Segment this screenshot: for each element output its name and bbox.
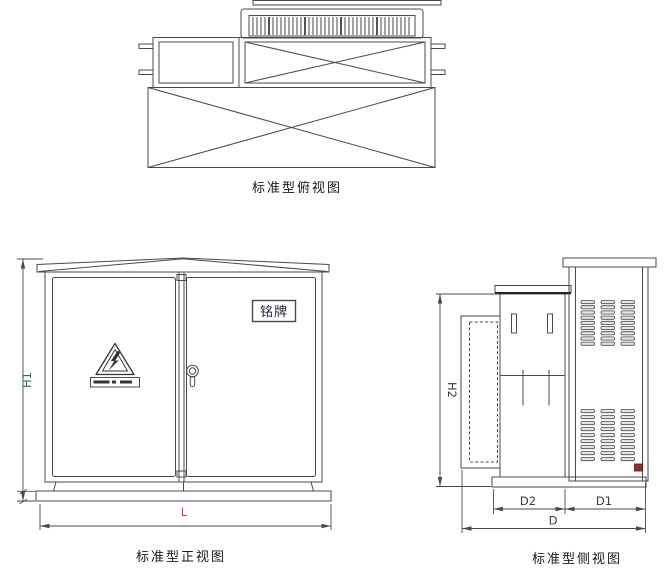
louver-slat	[621, 301, 635, 304]
d2-dimension-label: D2	[520, 494, 536, 508]
louver-slat	[581, 316, 595, 319]
front-view: 铭牌 H1 L	[17, 258, 331, 565]
louver-slat	[581, 311, 595, 314]
louver-slat	[621, 416, 635, 419]
louver-slat	[601, 342, 615, 345]
louver-slat	[601, 311, 615, 314]
d1-dimension-label: D1	[596, 494, 612, 508]
handle-ring	[187, 365, 199, 377]
l-dimension-label: L	[181, 505, 188, 519]
handle-stem	[190, 377, 194, 387]
louver-slat	[601, 332, 615, 335]
louver-slat	[621, 446, 635, 449]
louver-slat	[621, 428, 635, 431]
right-lifting-lug	[431, 44, 445, 49]
louver-slat	[581, 332, 595, 335]
louver-slat	[621, 321, 635, 324]
base-platform	[36, 491, 331, 501]
door-handle	[187, 365, 199, 386]
h2-dimension-label: H2	[445, 382, 459, 398]
louver-slat	[621, 434, 635, 437]
plinth-bracket-left	[54, 482, 57, 491]
radiator-grille-frame	[249, 16, 415, 37]
right-lifting-lug	[431, 70, 445, 75]
side-view-title: 标准型侧视图	[532, 552, 622, 567]
vent-slot	[548, 314, 553, 333]
warning-text-marks	[94, 381, 110, 384]
louver-slat	[581, 321, 595, 324]
middle-compartment-roof	[495, 286, 571, 293]
top-view: 标准型俯视图	[139, 1, 445, 197]
louver-slat	[581, 327, 595, 330]
louver-slat	[581, 458, 595, 461]
drawing-canvas: 标准型俯视图 铭牌	[0, 0, 670, 577]
louver-slat	[601, 440, 615, 443]
door-swing-box	[461, 316, 500, 468]
handle-ring-inner	[189, 368, 195, 374]
louver-slat	[621, 458, 635, 461]
louver-slat	[601, 316, 615, 319]
louver-slat	[601, 428, 615, 431]
substation-three-view-drawing: 标准型俯视图 铭牌	[0, 0, 670, 577]
louver-slat	[621, 332, 635, 335]
door-swing-dashed-outline	[470, 322, 498, 462]
plinth-bracket-right	[311, 482, 314, 491]
d-dimension-label: D	[549, 514, 558, 528]
louver-slat	[621, 327, 635, 330]
louver-slat	[601, 452, 615, 455]
top-view-rear-edge-bar	[253, 1, 441, 6]
louver-slat	[601, 416, 615, 419]
louver-slat	[621, 422, 635, 425]
top-view-title: 标准型俯视图	[252, 180, 342, 196]
warning-sign	[91, 344, 140, 388]
radiator-grille-bars	[253, 17, 409, 35]
louver-slat	[601, 422, 615, 425]
hv-compartment-outline	[153, 38, 239, 88]
louver-slat	[621, 316, 635, 319]
louver-slat	[581, 428, 595, 431]
divider-hinge-bottom	[177, 471, 186, 477]
louver-slat	[601, 327, 615, 330]
drain-valve	[635, 464, 643, 471]
cabinet-roof-cap	[563, 258, 656, 267]
louver-slat	[581, 410, 595, 413]
warning-text-marks	[112, 381, 116, 384]
louver-slat	[581, 301, 595, 304]
louver-slat	[581, 306, 595, 309]
louver-slat	[581, 446, 595, 449]
louver-slat	[581, 342, 595, 345]
louver-slat	[581, 434, 595, 437]
louver-slat	[601, 337, 615, 340]
louver-slat	[621, 337, 635, 340]
louver-slat	[581, 422, 595, 425]
louver-slat	[621, 311, 635, 314]
louver-slat	[581, 440, 595, 443]
front-view-title: 标准型正视图	[136, 550, 226, 565]
louver-slat	[621, 306, 635, 309]
louver-group-bottom	[581, 410, 635, 461]
louver-slat	[601, 410, 615, 413]
left-lifting-lug	[139, 70, 153, 75]
louver-slat	[621, 410, 635, 413]
louver-slat	[601, 306, 615, 309]
louver-slat	[601, 301, 615, 304]
lightning-bolt-icon	[109, 351, 121, 371]
louver-slat	[621, 342, 635, 345]
side-view: H2 D2 D1 D 标准型侧视图	[436, 258, 656, 567]
louver-slat	[581, 452, 595, 455]
louver-slat	[601, 446, 615, 449]
hv-compartment-inner	[159, 42, 233, 83]
h1-dimension-label: H1	[20, 372, 34, 388]
divider-hinge-top	[177, 275, 186, 281]
warning-text-marks	[120, 381, 132, 384]
louver-slat	[601, 321, 615, 324]
nameplate-label: 铭牌	[260, 304, 288, 320]
louver-slat	[621, 452, 635, 455]
louver-slat	[581, 416, 595, 419]
left-lifting-lug	[139, 44, 153, 49]
louver-slat	[601, 434, 615, 437]
middle-compartment	[500, 293, 565, 478]
louver-group-top	[581, 301, 635, 346]
louver-slat	[601, 458, 615, 461]
louver-slat	[621, 440, 635, 443]
roof-outline	[37, 258, 329, 272]
vent-slot	[512, 314, 517, 333]
louver-slat	[581, 337, 595, 340]
